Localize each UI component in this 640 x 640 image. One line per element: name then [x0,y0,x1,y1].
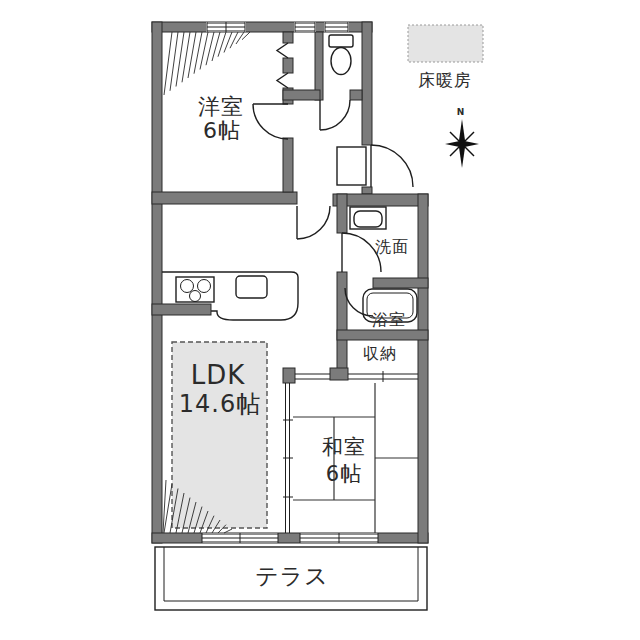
label-ldk: LDK [191,362,246,388]
kitchen-half-wall [152,304,211,315]
floorplan-drawing [0,0,640,640]
entry-step [337,147,366,185]
hatch-western-corner [164,32,250,95]
label-north: N [457,108,466,117]
floor-heating-legend-swatch [408,25,483,62]
label-floor-heating: 床暖房 [418,72,472,89]
label-western-room: 洋室 [198,96,244,118]
toilet-fixture [329,35,353,75]
compass-icon [445,119,479,168]
floorplan: 洋室 6帖 LDK 14.6帖 和室 6帖 洗面 浴室 収納 テラス 床暖房 N [0,0,640,640]
label-japanese-room: 和室 [322,437,366,458]
western-room-door [253,104,288,139]
window-ldk-terrace [202,533,278,543]
window-western-room [206,22,246,32]
wash-basin [350,207,386,229]
toilet-door [320,100,350,130]
kitchen-sink [236,276,267,298]
entrance-door [371,145,413,187]
window-toilet [324,22,349,32]
label-western-room-size: 6帖 [203,120,241,142]
window-japanese-terrace [300,533,378,543]
label-japanese-room-size: 6帖 [326,464,362,485]
fusuma-ldk-japanese [283,383,293,533]
window-closet [294,22,316,32]
stove [176,277,214,302]
fusuma-storage [348,371,418,382]
label-washroom: 洗面 [375,239,409,255]
hall-ldk-door [297,206,330,239]
label-ldk-size: 14.6帖 [179,392,261,416]
threshold-nook-japanese [295,374,330,379]
label-storage: 収納 [363,346,397,362]
label-bathroom: 浴室 [372,312,406,328]
label-terrace: テラス [255,565,329,588]
